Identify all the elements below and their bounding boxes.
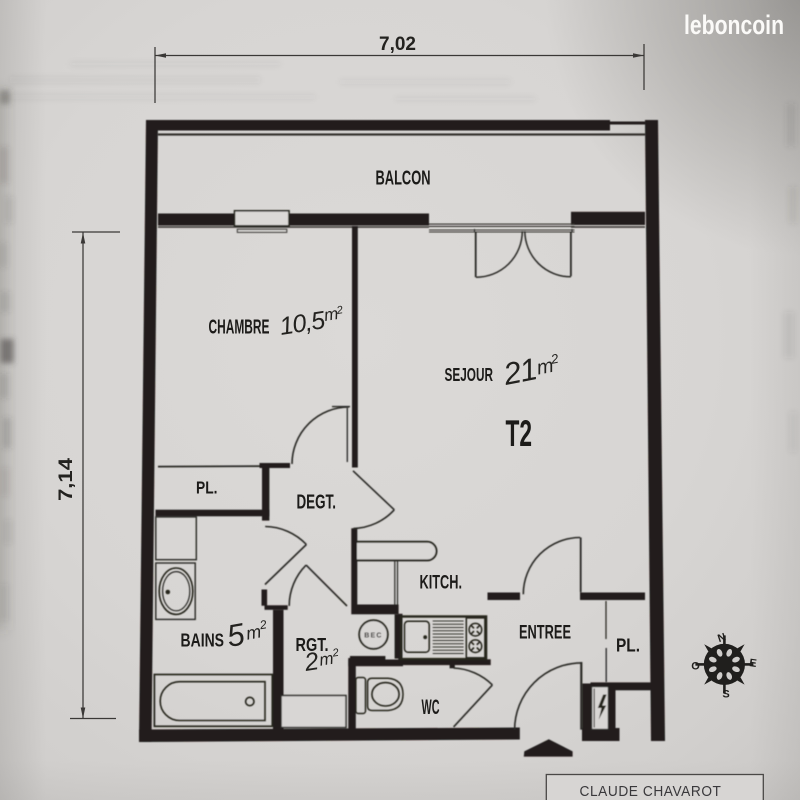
svg-text:DEGT.: DEGT. [297,492,337,514]
svg-text:KITCH.: KITCH. [420,573,463,594]
svg-text:CLAUDE CHAVAROT: CLAUDE CHAVAROT [580,784,722,800]
svg-text:BALCON: BALCON [376,168,431,190]
svg-text:O: O [691,661,700,673]
svg-text:T2: T2 [506,413,533,454]
svg-text:SEJOUR: SEJOUR [445,365,494,385]
svg-text:WC: WC [422,696,440,719]
svg-text:ENTREE: ENTREE [519,623,571,644]
svg-text:PL.: PL. [196,478,218,498]
svg-text:BEC: BEC [364,632,382,639]
svg-text:CHAMBRE: CHAMBRE [209,317,270,339]
svg-text:7,02: 7,02 [379,34,416,55]
svg-text:S: S [722,689,729,701]
svg-text:PL.: PL. [616,635,640,656]
svg-text:7,14: 7,14 [56,458,77,501]
svg-text:leboncoin: leboncoin [684,10,784,40]
svg-text:BAINS: BAINS [181,631,225,651]
